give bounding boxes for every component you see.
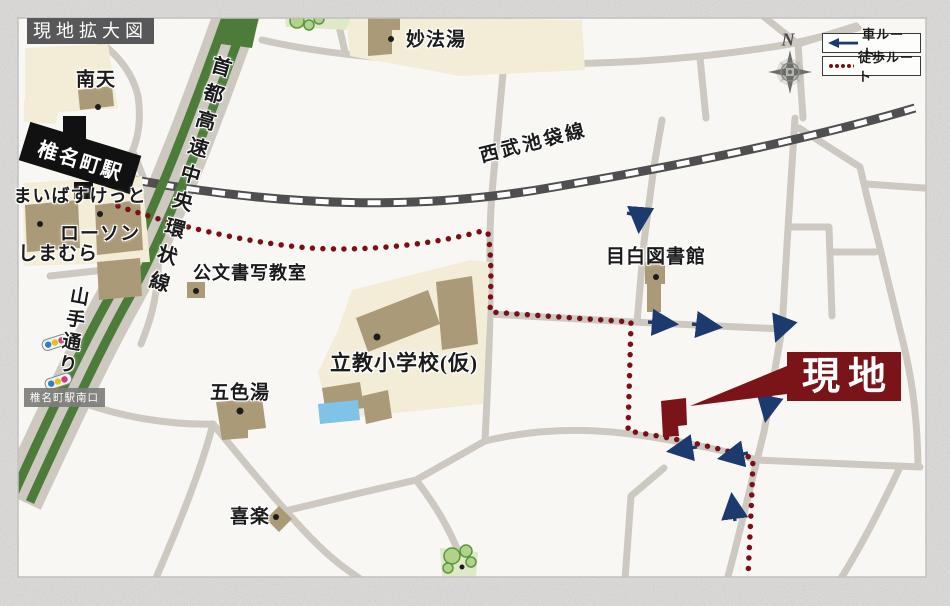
legend-walk-label: 徒歩ルート (858, 47, 915, 85)
school-pool (318, 400, 360, 424)
site-label: 現地 (787, 352, 901, 401)
label-goshikiyu: 五色湯 (210, 378, 270, 405)
walk-route-dots-icon (828, 60, 854, 72)
label-kumon: 公文書写教室 (193, 259, 307, 285)
label-myohoyu: 妙法湯 (406, 25, 466, 52)
station-south-exit-badge: 椎名町駅南口 (24, 388, 105, 407)
label-shimamura: しまむら (18, 239, 98, 266)
label-rikkyo-school: 立教小学校(仮) (330, 347, 478, 377)
car-route-arrow-icon (828, 37, 858, 49)
label-nanten: 南天 (76, 65, 116, 92)
site-map: 現地拡大図 南天 妙法湯 まいばすけっと ローソン しまむら 公文書写教室 立教… (0, 0, 950, 606)
label-mejiro-library: 目白図書館 (606, 242, 706, 269)
map-title: 現地拡大図 (27, 18, 154, 44)
label-kiraku: 喜楽 (230, 502, 270, 529)
legend-walk-route: 徒歩ルート (822, 56, 921, 76)
compass-north-label: N (782, 30, 795, 51)
